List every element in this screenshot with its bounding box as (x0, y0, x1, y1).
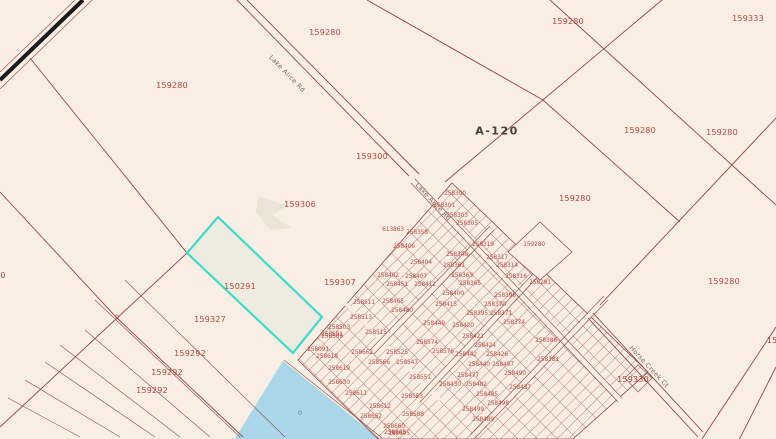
parcel-label-258424: 258424 (474, 343, 496, 349)
parcel-label-258398: 258398 (494, 293, 516, 299)
parcel-label-258371: 258371 (490, 311, 512, 317)
parcel-label-258499: 258499 (462, 407, 484, 413)
parcel-label-258489: 258489 (472, 417, 494, 423)
parcel-label-258303: 258303 (446, 213, 468, 219)
parcel-label-258482: 258482 (465, 382, 487, 388)
parcel-label-258305: 258305 (456, 221, 478, 227)
parcel-label-258386: 258386 (535, 338, 557, 344)
parcel-label-258619: 258619 (328, 366, 350, 372)
parcel-label-159330: 159330 (617, 376, 649, 384)
parcel-label-258348: 258348 (446, 252, 468, 258)
parcel-label-258480: 258480 (391, 308, 413, 314)
parcel-label-159307: 159307 (324, 279, 356, 287)
parcel-label-258485: 258485 (476, 392, 498, 398)
parcel-label-258421: 258421 (462, 334, 484, 340)
road-label-lake-alice-rd: Lake Alice Rd (268, 54, 307, 94)
parcel-label-258449: 258449 (423, 321, 445, 327)
parcel-label-258612: 258612 (369, 404, 391, 410)
parcel-label-159280: 159280 (552, 18, 584, 26)
parcel-label-258576: 258576 (432, 349, 454, 355)
parcel-label-258406: 258406 (393, 244, 415, 250)
parcel-label-159300: 159300 (356, 153, 388, 161)
parcel-label-258400: 258400 (442, 291, 464, 297)
parcel-label-0: 0 (0, 272, 5, 280)
parcel-label-258662: 258662 (351, 350, 373, 356)
parcel-label-258314: 258314 (496, 263, 518, 269)
parcel-label-258374: 258374 (503, 320, 525, 326)
parcel-label-258365: 258365 (459, 281, 481, 287)
parcel-label-258611: 258611 (345, 391, 367, 397)
parcel-label-258301: 258301 (433, 203, 455, 209)
parcel-label-258465: 258465 (382, 299, 404, 305)
section-label-a-120: A-120 (475, 126, 519, 137)
parcel-label-258316: 258316 (505, 274, 527, 280)
parcel-label-159280: 159280 (309, 29, 341, 37)
parcel-label-159280: 159280 (156, 82, 188, 90)
map-labels-layer: 1592801592801592801593331592801592801592… (0, 0, 776, 439)
parcel-label-258402: 258402 (377, 273, 399, 279)
parcel-label-613863: 613863 (382, 227, 404, 233)
parcel-label-258363: 258363 (451, 273, 473, 279)
parcel-label-159280: 159280 (706, 129, 738, 137)
parcel-label-258395: 258395 (466, 311, 488, 317)
parcel-label-258370: 258370 (484, 302, 506, 308)
parcel-label-258381: 258381 (537, 357, 559, 363)
parcel-label-159292: 159292 (174, 350, 206, 358)
parcel-label-258566: 258566 (368, 360, 390, 366)
parcel-label-159306: 159306 (284, 201, 316, 209)
parcel-label-258511: 258511 (353, 300, 375, 306)
map-canvas[interactable]: 1592801592801592801593331592801592801592… (0, 0, 776, 439)
parcel-label-258477: 258477 (457, 373, 479, 379)
parcel-label-258317: 258317 (486, 255, 508, 261)
parcel-label-0: 0 (298, 410, 302, 417)
parcel-label-258430: 258430 (439, 382, 461, 388)
parcel-label-159292: 159292 (136, 387, 168, 395)
parcel-label-159280: 159280 (559, 195, 591, 203)
parcel-label-258358: 258358 (406, 230, 428, 236)
parcel-label-15: 15 (767, 337, 776, 345)
parcel-label-258437: 258437 (509, 385, 531, 391)
parcel-label-258652: 258652 (360, 414, 382, 420)
parcel-label-258361: 258361 (443, 263, 465, 269)
parcel-label-258591: 258591 (321, 332, 343, 338)
parcel-label-258588: 258588 (402, 412, 424, 418)
parcel-label-258442: 258442 (455, 352, 477, 358)
parcel-label-159327: 159327 (194, 316, 226, 324)
parcel-label-258553: 258553 (401, 394, 423, 400)
parcel-label-258440: 258440 (468, 362, 490, 368)
parcel-label-258412: 258412 (414, 282, 436, 288)
parcel-label-258605: 258605 (388, 431, 410, 437)
parcel-label-159280: 159280 (708, 278, 740, 286)
parcel-label-258426: 258426 (486, 352, 508, 358)
parcel-label-258407: 258407 (405, 274, 427, 280)
parcel-label-159333: 159333 (732, 15, 764, 23)
parcel-label-258300: 258300 (444, 191, 466, 197)
parcel-label-258618: 258618 (316, 354, 338, 360)
parcel-label-258415: 258415 (435, 302, 457, 308)
parcel-label-258574: 258574 (416, 340, 438, 346)
parcel-label-258515: 258515 (365, 330, 387, 336)
parcel-label-258281: 258281 (529, 280, 551, 286)
parcel-label-258547: 258547 (396, 360, 418, 366)
parcel-label-159292: 159292 (151, 369, 183, 377)
parcel-label-258420: 258420 (452, 323, 474, 329)
parcel-label-258525: 258525 (386, 350, 408, 356)
parcel-label-159280: 159280 (523, 242, 545, 248)
parcel-label-258551: 258551 (409, 375, 431, 381)
parcel-label-258513: 258513 (350, 315, 372, 321)
parcel-label-258319: 258319 (472, 242, 494, 248)
parcel-label-258404: 258404 (410, 260, 432, 266)
parcel-label-258497: 258497 (492, 362, 514, 368)
parcel-label-159280: 159280 (624, 127, 656, 135)
parcel-label-258498: 258498 (487, 401, 509, 407)
parcel-label-258630: 258630 (328, 380, 350, 386)
parcel-label-258451: 258451 (386, 282, 408, 288)
parcel-label-258490: 258490 (504, 371, 526, 377)
parcel-label-0: 0 (115, 315, 119, 321)
parcel-label-150291: 150291 (224, 283, 256, 291)
